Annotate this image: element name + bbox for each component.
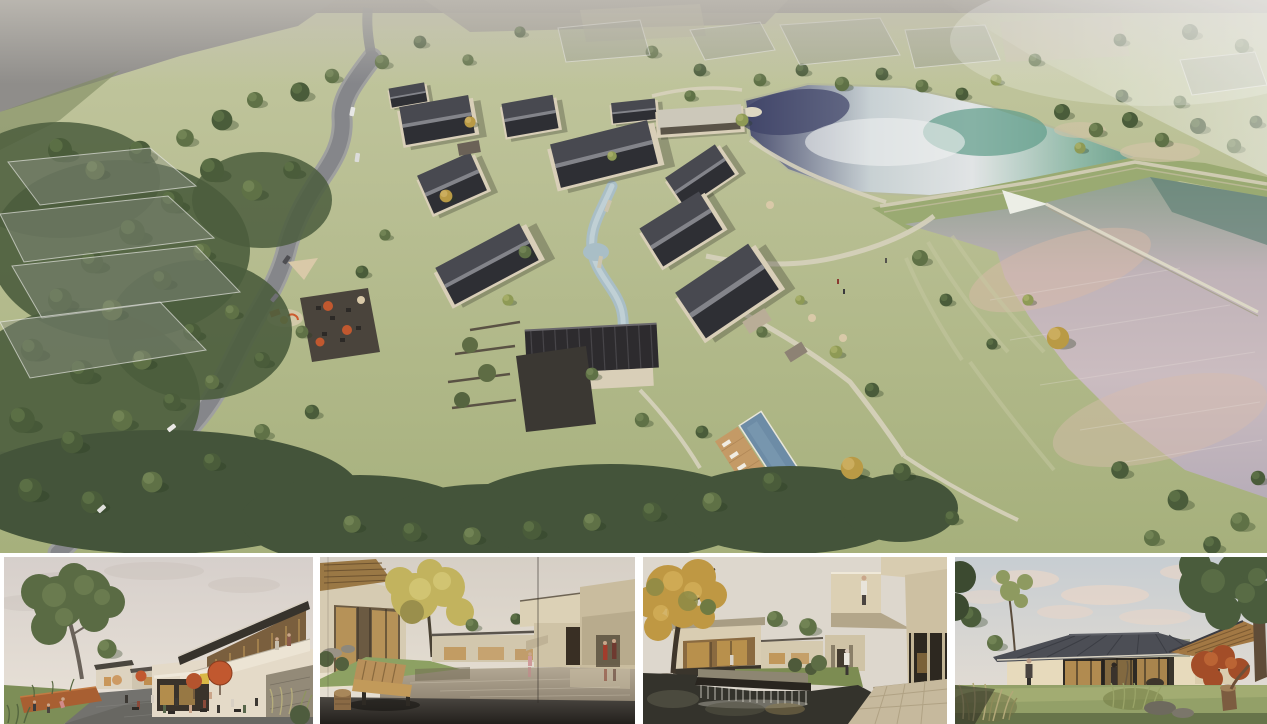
lakeside-pavilion xyxy=(655,104,747,140)
presentation-board xyxy=(0,0,1267,724)
carved-stool xyxy=(334,689,351,710)
thumbnail-courtyard-pond xyxy=(320,557,635,724)
stone-courtyard xyxy=(516,346,596,432)
thumbnail-waterfall-court xyxy=(643,557,947,724)
distant-figure xyxy=(528,656,532,666)
rock xyxy=(1144,701,1176,715)
thumbnail-street-plaza xyxy=(4,557,313,724)
figure xyxy=(730,655,734,665)
aerial-masterplan-render xyxy=(0,0,1267,553)
thumbnail-garden-pavilion xyxy=(955,557,1267,724)
rock xyxy=(1172,708,1194,718)
umbrella-icon xyxy=(136,671,147,682)
